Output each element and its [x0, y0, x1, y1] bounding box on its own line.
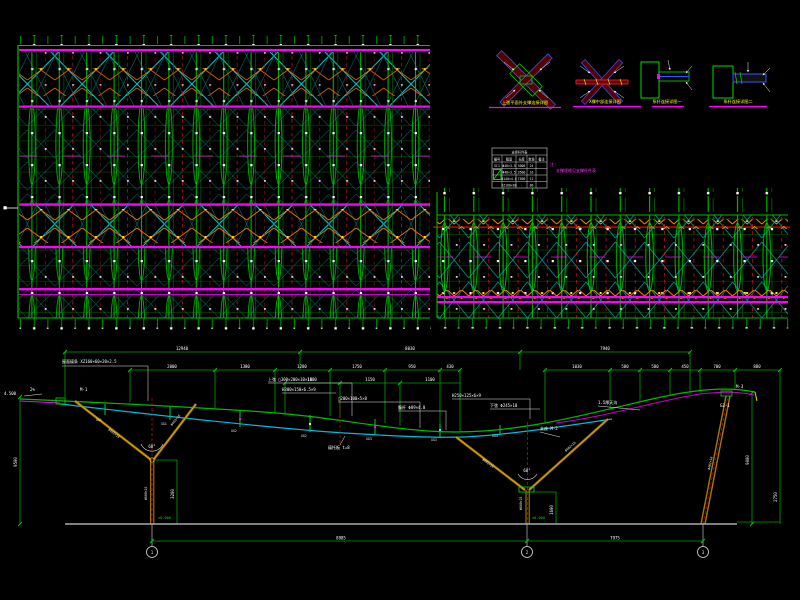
annotation-2: M-1: [80, 387, 88, 392]
detail-1: 上弦平面外支撑连接详图: [489, 51, 561, 110]
dim-label: 7975: [610, 536, 620, 541]
table-header: 数量: [528, 157, 535, 162]
table-cell: 24: [530, 164, 534, 168]
member-tag: XG2: [231, 429, 237, 433]
dim-label: 1750: [352, 364, 362, 369]
annotation-7: H250×125×6×9: [452, 393, 481, 398]
cad-drawing: 上弦平面外支撑连接详图 X撑中部连接详图 系杆连接详图一 系: [0, 0, 800, 600]
v1-dim: 3200: [154, 460, 177, 524]
annotation-12: GZ-1: [720, 403, 730, 408]
bracing-band-middle: [19, 204, 430, 249]
member-tag: XG1: [161, 422, 167, 426]
leg-tag: Φ402×16: [564, 441, 577, 453]
table-cell: 7500: [518, 177, 526, 181]
dim-row-2-left: 2000 1380 1280 1750 950 430: [128, 364, 462, 431]
truss-field-lower: [19, 248, 430, 318]
dim-row-1: 12940 8030 7940: [63, 346, 692, 397]
detail-1-label: 上弦平面外支撑连接详图: [502, 99, 548, 106]
dim-label: 1380: [240, 364, 250, 369]
left-vertical-dim: 9500 4.500: [4, 391, 22, 526]
table-cell: -: [521, 184, 523, 188]
table-symbol: [494, 170, 502, 180]
annotation-10: 檩托板 t=8: [328, 444, 350, 450]
dim-label: 1150: [365, 377, 375, 382]
grid-bubble-1: 1: [151, 550, 154, 556]
dim-label: 430: [446, 364, 454, 369]
dim-label: 950: [408, 364, 416, 369]
left-edge-marker: [4, 206, 19, 209]
level-mark-1: ±0.000: [158, 516, 171, 520]
roof-magenta-left: [20, 401, 60, 403]
note-line2: 支撑规格见支撑杆件表: [556, 167, 596, 173]
v-column-2: 60°: [456, 419, 608, 524]
member-tag: XG3: [366, 437, 372, 441]
table-cell: Φ48×3.5: [502, 171, 516, 175]
leg-tag: Φ402×16: [481, 458, 494, 469]
member-tags: XG1 XG1 XG2 XG2 XG3 XG3 XG4: [96, 418, 498, 442]
bottom-grid-ticks: [436, 319, 789, 329]
level-label: 4.500: [4, 391, 17, 396]
dim-label: 1030: [572, 364, 582, 369]
trunk-tag: Φ600×25: [144, 486, 148, 500]
leg-tag: Φ402×16: [107, 428, 120, 439]
dim-label: 2750: [773, 492, 778, 502]
detail-3-label: 系杆连接详图一: [652, 98, 681, 105]
table-cell: 16: [530, 171, 534, 175]
grid-bubble-2: 2: [526, 550, 529, 556]
dim-label: 12940: [176, 346, 189, 351]
table-cell: Φ48×3.5: [502, 164, 516, 168]
table-title: 支撑杆件表: [512, 150, 529, 155]
detail-2: X撑中部连接详图: [573, 60, 641, 107]
member-tag: XG4: [492, 434, 498, 438]
level-mark-2: ±0.000: [532, 516, 545, 520]
table-cell: 3500: [518, 171, 526, 175]
dim-label: 700: [713, 364, 721, 369]
member-tag: XG1: [96, 418, 102, 422]
table-cell: SC1: [494, 164, 500, 168]
dim-label: 1600: [549, 505, 554, 515]
annotation-11: 1.5厚天沟: [598, 399, 617, 405]
dim-label: 880: [753, 364, 761, 369]
note: 注: 支撑规格见支撑杆件表: [550, 161, 596, 173]
magenta-band-2: [437, 301, 788, 303]
annotation-5: □200×100×5×8: [338, 396, 367, 401]
table-header: 编号: [494, 157, 500, 162]
column-tags: Φ402×16 Φ402×16 Φ402×16 Φ402×16 Φ402×16 …: [107, 414, 713, 510]
top-grid-ticks: [17, 35, 431, 46]
dim-label: 2000: [167, 364, 177, 369]
detail-2-label: X撑中部连接详图: [589, 98, 621, 105]
dim-label: 8985: [336, 536, 346, 541]
bracing-band-upper: [19, 49, 430, 108]
grid-stubs: [437, 188, 788, 212]
note-line1: 注:: [550, 161, 556, 167]
right-roof-plan: [433, 188, 790, 329]
trunk-tag: Φ600×25: [519, 496, 523, 510]
member-tag: XG3: [431, 438, 437, 442]
right-vertical-dim: 9000 2750: [737, 391, 780, 526]
bottom-grid-ticks: [17, 319, 431, 330]
detail-4-label: 系杆连接详图二: [723, 98, 752, 105]
annotation-9: 支座 M-2: [540, 425, 558, 431]
dim-label: 580: [621, 364, 629, 369]
roof-right-edge: [755, 392, 757, 401]
table-header: 截面: [506, 157, 512, 162]
annotation-8: 下弦 Φ245×10: [490, 402, 518, 408]
member-tag: XG2: [301, 434, 307, 438]
table-cell: XZ160×60: [501, 184, 516, 188]
dim-label: 1100: [425, 377, 435, 382]
dim-label: 580: [651, 364, 659, 369]
annotation-13: M-3: [736, 384, 744, 389]
dim-label: 450: [681, 364, 689, 369]
angle-label: 60°: [148, 444, 155, 449]
detail-3: 系杆连接详图一: [641, 60, 692, 107]
annotation-4: H300×150×6.5×9: [282, 387, 316, 392]
annotation-6: 腹杆 Φ89×4.0: [398, 404, 426, 410]
table-cell: Φ140×4.0: [501, 177, 516, 181]
parts-table: 支撑杆件表 编号 截面 长度 数量 备注 SC1 Φ48×3.5 3000 24…: [492, 148, 547, 188]
grid-bubble-3: 3: [702, 550, 705, 556]
table-cell: 86: [530, 184, 534, 188]
detail-4: 系杆连接详图二: [709, 62, 770, 107]
elevation-section: 12940 8030 7940 2000 1380 1280 1750 950 …: [4, 346, 782, 558]
level-marks: ±0.000 ±0.000: [158, 516, 545, 520]
table-header: 长度: [518, 157, 525, 162]
dim-label: 9000: [745, 455, 750, 465]
left-roof-plan: [4, 35, 432, 330]
dim-label: 9500: [13, 457, 18, 467]
cad-canvas: 上弦平面外支撑连接详图 X撑中部连接详图 系杆连接详图一 系: [0, 0, 800, 600]
annotation-3: 上弦 □300×200×10×10: [268, 376, 313, 382]
truss-field-upper: [19, 108, 430, 204]
dim-label: 7940: [600, 346, 610, 351]
dim-label: 3200: [170, 489, 175, 499]
dim-label: 1280: [297, 364, 307, 369]
inclined-column: [701, 391, 732, 524]
table-header: 备注: [538, 157, 545, 162]
dim-label: 8030: [405, 346, 415, 351]
angle-label: 60°: [523, 468, 530, 473]
table-cell: 12: [530, 177, 534, 181]
magenta-band-1: [437, 296, 788, 298]
slope-label: 2%: [30, 387, 35, 392]
annotation-1: 屋面檩条 XZ160×60×20×2.5: [62, 358, 117, 364]
table-cell: 3000: [518, 164, 526, 168]
bottom-dims: 8985 7975: [150, 536, 705, 544]
